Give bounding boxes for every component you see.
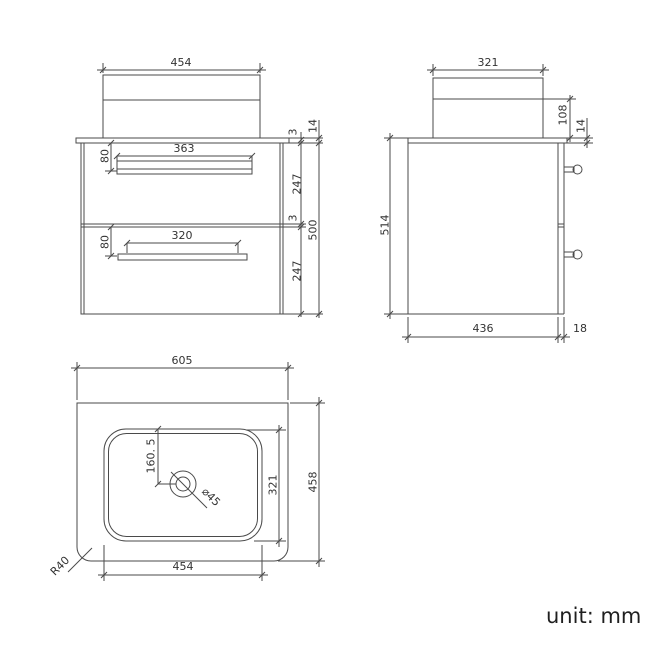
dim-cabinet-depth: 436 [473, 322, 494, 335]
dim-tap-hole-offset: 160. 5 [145, 439, 158, 474]
dim-counter-gap: 3 [287, 129, 300, 136]
dim-drawer1-handle-width: 363 [174, 142, 195, 155]
dim-drawer1-handle-offset: 80 [99, 149, 112, 163]
plan-dimension-lines [71, 362, 325, 581]
dim-basin-depth-plan: 321 [267, 475, 280, 496]
dim-drawer-gap: 3 [287, 215, 300, 222]
dim-drawer2-handle-width: 320 [172, 229, 193, 242]
dim-basin-width-plan: 454 [173, 560, 194, 573]
front-dimension-ticks [100, 67, 322, 317]
dim-countertop-thickness-side: 14 [575, 119, 588, 133]
basin-inner-rim [109, 434, 258, 537]
side-view: 321 108 14 514 436 18 [379, 56, 594, 343]
dim-front-basin-width: 454 [171, 56, 192, 69]
plan-view: 605 160. 5 321 458 454 ⌀45 R40 [48, 354, 325, 581]
front-dimension-lines [97, 63, 323, 318]
dim-corner-radius: R40 [48, 554, 72, 578]
dim-door-thickness: 18 [573, 322, 587, 335]
dim-waste-hole-diameter: ⌀45 [199, 485, 223, 509]
drawer1-handle [117, 156, 252, 174]
dim-drawer1-front-height: 247 [291, 174, 304, 195]
unit-note: unit: mm [546, 604, 641, 628]
waste-hole-leader [171, 472, 207, 508]
front-view: 454 363 80 320 80 3 247 3 247 14 500 [76, 56, 323, 318]
dim-cabinet-height: 500 [307, 220, 320, 241]
dim-overall-height: 514 [379, 215, 392, 236]
cabinet-side-outline [408, 143, 564, 314]
plan-dimension-ticks [74, 365, 322, 578]
dim-basin-depth: 321 [478, 56, 499, 69]
countertop-side [408, 138, 567, 143]
basin-outer-rim [104, 429, 262, 541]
handle-side-profiles [564, 167, 574, 257]
technical-drawing-vanity-unit: 454 363 80 320 80 3 247 3 247 14 500 321… [0, 0, 650, 650]
basin-front-outline [103, 75, 260, 138]
dim-countertop-thickness-front: 14 [307, 119, 320, 133]
corner-radius-leader [68, 548, 92, 572]
dim-basin-height: 108 [557, 105, 570, 126]
drawing-canvas: 454 363 80 320 80 3 247 3 247 14 500 321… [0, 0, 650, 650]
drawer2-handle [118, 254, 247, 260]
dim-drawer2-front-height: 247 [291, 261, 304, 282]
dim-countertop-depth: 458 [307, 472, 320, 493]
dim-drawer2-handle-offset: 80 [99, 235, 112, 249]
basin-side-outline [433, 78, 543, 138]
dim-countertop-width: 605 [172, 354, 193, 367]
